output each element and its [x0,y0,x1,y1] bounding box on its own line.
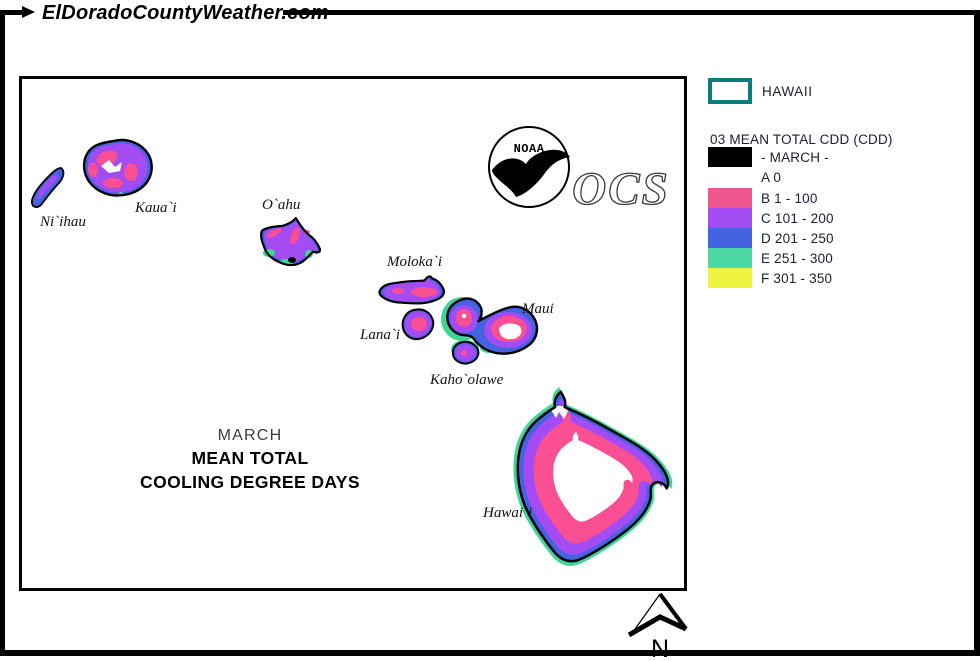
island-kahoolawe [451,340,479,364]
page-border-bottom [0,650,980,656]
header-arrow-icon [22,6,35,18]
map-title-line2: MEAN TOTAL [191,448,308,468]
legend-swatch-f [708,268,752,288]
island-molokai [378,276,445,304]
label-molokai: Moloka`i [386,254,442,270]
legend-row-d: D 201 - 250 [708,228,834,248]
page-border-left [0,10,5,656]
legend-swatch-c [708,208,752,228]
legend-row-e: E 251 - 300 [708,248,834,268]
page-border-top-stub [0,10,22,15]
island-lanai [402,309,434,340]
map-frame: Ni`ihau Kaua`i O`ahu Moloka`i Lana`i Mau… [19,76,687,591]
legend-label-f: F 301 - 350 [761,271,832,286]
label-lanai: Lana`i [359,327,400,343]
label-kahoolawe: Kaho`olawe [429,372,504,388]
legend-row-f: F 301 - 350 [708,268,834,288]
legend-label-e: E 251 - 300 [761,251,833,266]
legend-swatch-a [708,167,752,188]
label-maui: Maui [521,301,554,317]
legend-row-a: A 0 [708,167,834,188]
legend-title: 03 MEAN TOTAL CDD (CDD) [710,132,893,147]
legend-swatch-d [708,228,752,248]
hawaii-map: Ni`ihau Kaua`i O`ahu Moloka`i Lana`i Mau… [22,79,684,588]
north-arrow: N [620,588,696,660]
island-kauai [83,139,153,196]
island-niihau [32,168,64,207]
legend-rows: - MARCH - A 0 B 1 - 100 C 101 - 200 D 20… [708,147,834,288]
label-oahu: O`ahu [262,197,300,213]
label-niihau: Ni`ihau [39,214,86,230]
island-hawaii [513,387,672,566]
label-kauai: Kaua`i [134,200,177,216]
north-arrow-label: N [651,635,669,660]
legend-region-row: HAWAII [708,78,813,104]
hawaii-outline-swatch [708,78,752,104]
legend-row-b: B 1 - 100 [708,188,834,208]
island-oahu [260,217,321,266]
page: ElDoradoCountyWeather.com [0,0,980,661]
legend-label-c: C 101 - 200 [761,211,834,226]
legend-swatch-e [708,248,752,268]
legend-label-a: A 0 [761,170,781,185]
legend-swatch-month [708,147,752,167]
ocs-logo-text: OCS [572,163,669,215]
legend-row-month: - MARCH - [708,147,834,167]
legend-row-c: C 101 - 200 [708,208,834,228]
site-title[interactable]: ElDoradoCountyWeather.com [42,2,329,25]
map-title-line3: COOLING DEGREE DAYS [140,472,360,492]
map-title: MARCH MEAN TOTAL COOLING DEGREE DAYS [140,427,360,492]
legend-label-b: B 1 - 100 [761,191,818,206]
hawaii-region-label: HAWAII [762,84,813,99]
legend-swatch-b [708,188,752,208]
legend-label-d: D 201 - 250 [761,231,834,246]
label-hawaii: Hawai`i [482,505,532,521]
legend-label-month: - MARCH - [761,150,829,165]
noaa-logo: NOAA [489,127,570,207]
page-border-right [974,10,980,656]
page-border-top-right [283,10,980,15]
map-title-month: MARCH [218,427,283,444]
